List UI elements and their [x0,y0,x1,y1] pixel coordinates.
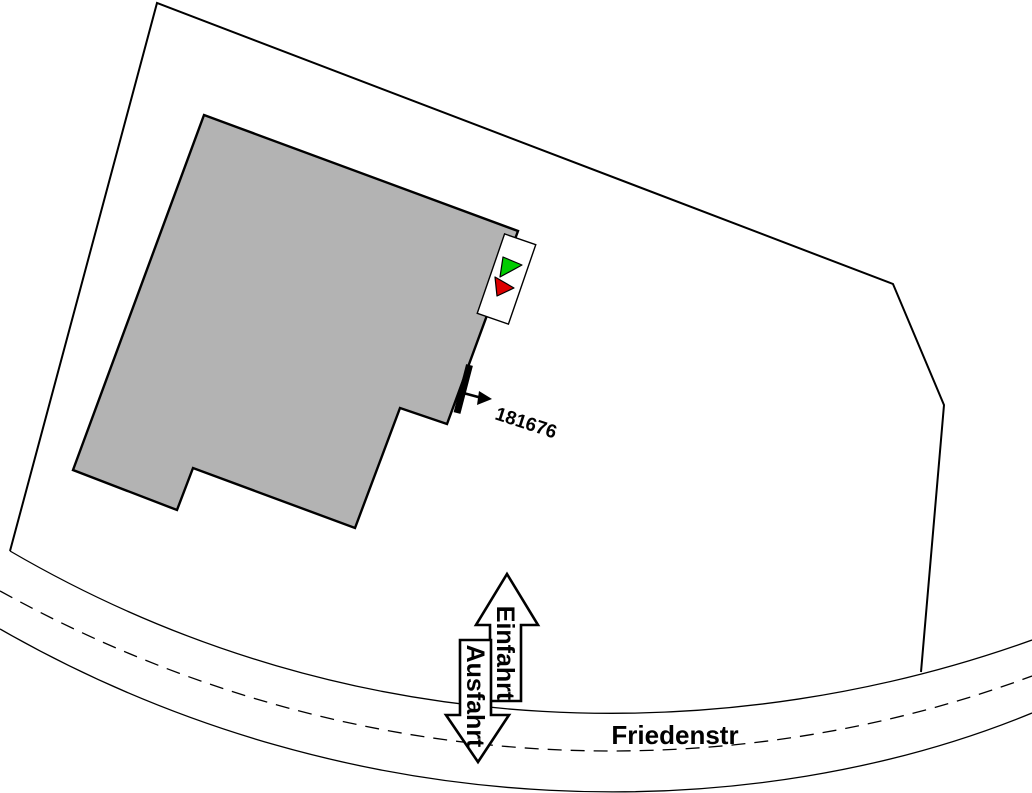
exit-arrow-label: Ausfahrt [461,645,489,748]
entrance-arrow-label: Einfahrt [491,606,519,701]
street-name-label: Friedenstr [611,720,738,750]
site-plan-canvas: 181676 Einfahrt Ausfahrt Friedenstr [0,0,1032,793]
site-plan: 181676 Einfahrt Ausfahrt Friedenstr [0,0,1032,793]
